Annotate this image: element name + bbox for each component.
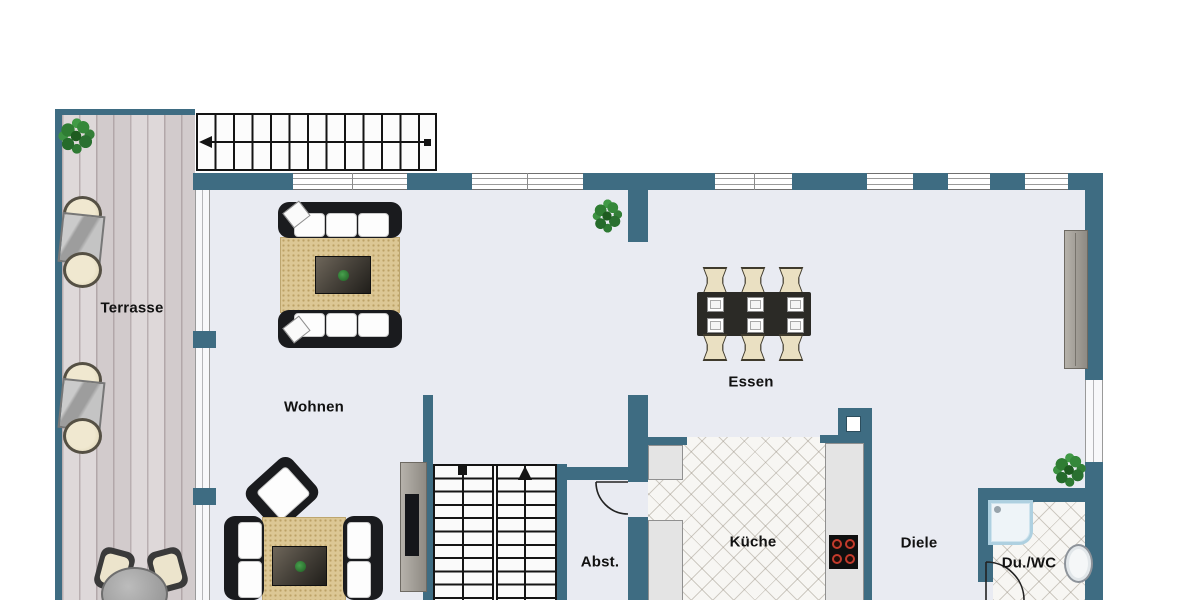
sofa (343, 516, 383, 600)
sofa-cushion (238, 522, 262, 559)
sofa-cushion (347, 522, 371, 559)
window-segment (867, 173, 913, 190)
window-mullion (352, 173, 353, 190)
dining-table (697, 292, 811, 336)
wall-segment (792, 173, 867, 190)
window-segment (195, 190, 210, 331)
niche-window (846, 416, 861, 432)
sofa (224, 516, 264, 600)
window-segment (1025, 173, 1068, 190)
table-plant-icon (338, 270, 349, 281)
sofa-cushion (238, 561, 262, 598)
kitchen-counter (825, 443, 864, 600)
plant-icon (1051, 451, 1087, 489)
wall-kitchen-upper (628, 395, 648, 482)
wall-terrace-top (55, 109, 195, 115)
kitchen-counter (648, 520, 683, 600)
placemat (787, 297, 804, 312)
wall-stairs-right (557, 464, 567, 600)
placemat (707, 318, 724, 333)
wall-segment (990, 173, 1025, 190)
stair-walk-line (524, 466, 526, 600)
window-segment (948, 173, 990, 190)
burner-icon (845, 539, 855, 549)
placemat (707, 297, 724, 312)
sofa-cushion (326, 213, 357, 237)
stove (829, 535, 858, 569)
window-segment (472, 173, 583, 190)
stair-start-marker (424, 139, 431, 146)
wall-stub (193, 331, 216, 348)
stair-arrow-icon (518, 466, 532, 480)
window-segment (195, 348, 210, 488)
window-mullion (527, 173, 528, 190)
wall-kitchen-lower (628, 517, 648, 600)
room-label-diele: Diele (901, 535, 938, 552)
sideboard-seam (1075, 233, 1076, 366)
window-segment (195, 505, 210, 600)
window-segment (293, 173, 407, 190)
sofa-cushion (326, 313, 357, 337)
shower (988, 500, 1033, 545)
wall-segment (193, 173, 293, 190)
room-label-wohnen: Wohnen (284, 399, 344, 416)
stair-start-marker (458, 466, 467, 475)
tv (405, 494, 419, 556)
room-label-kueche: Küche (730, 534, 777, 551)
coffee-table (272, 546, 327, 586)
lounge-chair (63, 418, 102, 454)
room-label-terrasse: Terrasse (100, 300, 163, 317)
sofa-cushion (347, 561, 371, 598)
sofa-cushion (358, 313, 389, 337)
wall-kitchen-topleft (648, 437, 687, 445)
wall-terrace-left (55, 109, 62, 600)
plant-icon (591, 197, 623, 235)
plant-icon (56, 116, 96, 156)
interior-stairs (433, 464, 557, 600)
room-label-essen: Essen (728, 374, 773, 391)
wall-stub (193, 488, 216, 505)
room-label-duwc: Du./WC (1002, 555, 1057, 572)
wall-segment (583, 173, 715, 190)
terrace-deck (62, 115, 195, 600)
stair-flight (435, 466, 494, 600)
wall-segment (913, 173, 948, 190)
stair-walk-line (204, 141, 429, 143)
table-plant-icon (295, 561, 306, 572)
burner-icon (832, 554, 842, 564)
placemat (747, 318, 764, 333)
wall-segment (1068, 173, 1103, 190)
stair-walk-line (462, 466, 464, 600)
window-segment (715, 173, 792, 190)
burner-icon (845, 554, 855, 564)
lounge-chair (63, 252, 102, 288)
window-mullion (754, 173, 755, 190)
wall-right-lower (1085, 462, 1103, 600)
room-label-abst: Abst. (581, 554, 620, 571)
floor-plan: Terrasse Wohnen Essen Abst. Küche Diele … (0, 0, 1200, 600)
window-segment (1085, 380, 1103, 462)
coffee-table (315, 256, 371, 294)
placemat (787, 318, 804, 333)
wall-abst-top (563, 467, 628, 480)
exterior-stairs (196, 113, 437, 171)
wall-segment (407, 173, 472, 190)
sideboard (1064, 230, 1088, 369)
placemat (747, 297, 764, 312)
wall-essen-stub (628, 188, 648, 242)
sofa-cushion (358, 213, 389, 237)
washbasin (1064, 544, 1093, 583)
shower-head-icon (994, 506, 1001, 513)
kitchen-counter (648, 445, 683, 480)
burner-icon (832, 539, 842, 549)
stair-arrow-icon (199, 136, 212, 148)
